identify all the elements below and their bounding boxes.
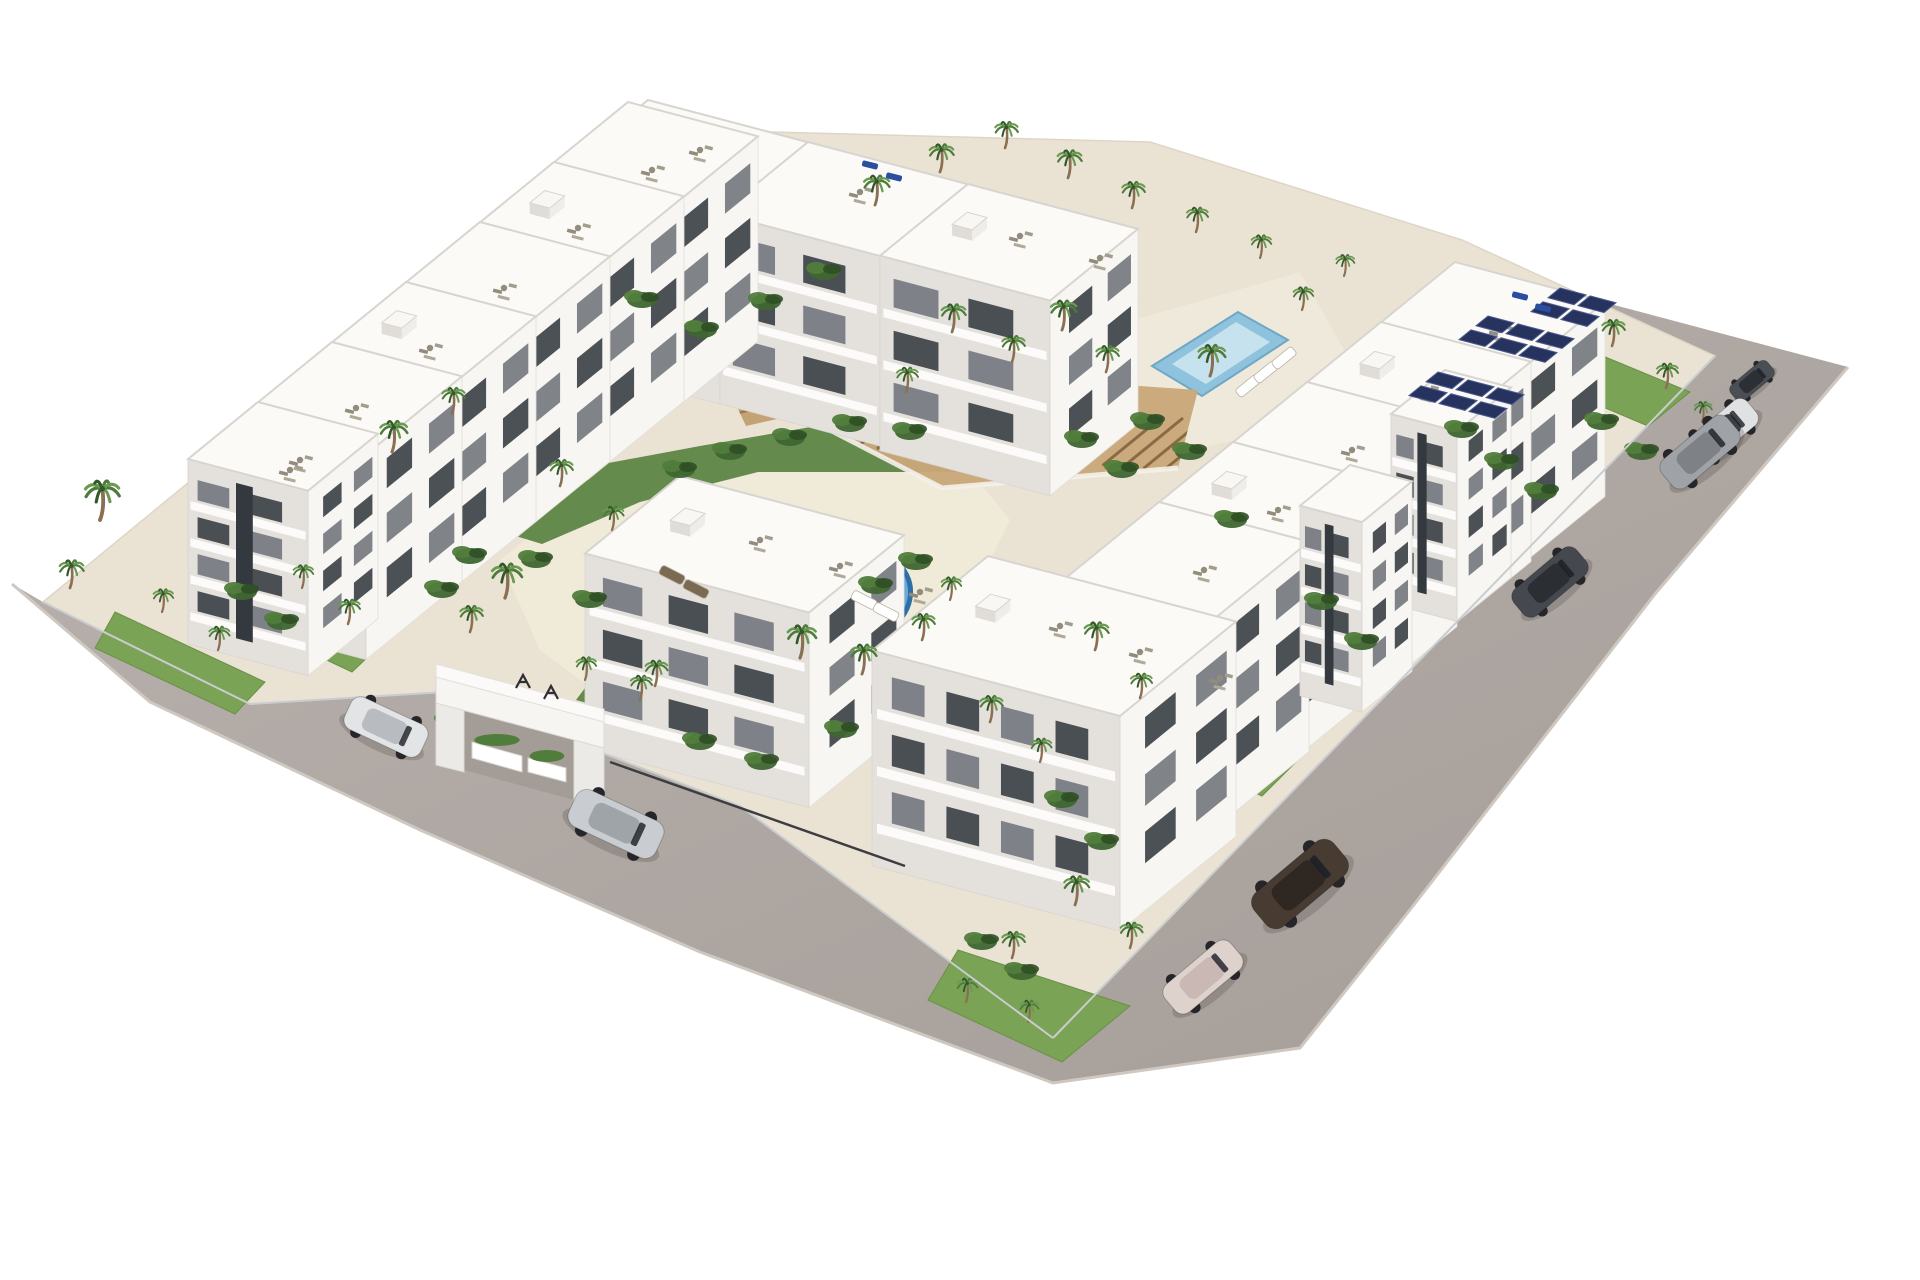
- apartment-complex-aerial-rendering: [0, 0, 1920, 1280]
- gate-planter-hedge: [530, 750, 565, 762]
- palm-tree: [85, 481, 119, 520]
- gate-planter-hedge: [474, 734, 519, 746]
- apartment-building: [1300, 465, 1412, 712]
- gate-pillar: [436, 703, 464, 772]
- architectural-rendering-page: [0, 0, 1920, 1280]
- apartment-building: [872, 556, 1236, 931]
